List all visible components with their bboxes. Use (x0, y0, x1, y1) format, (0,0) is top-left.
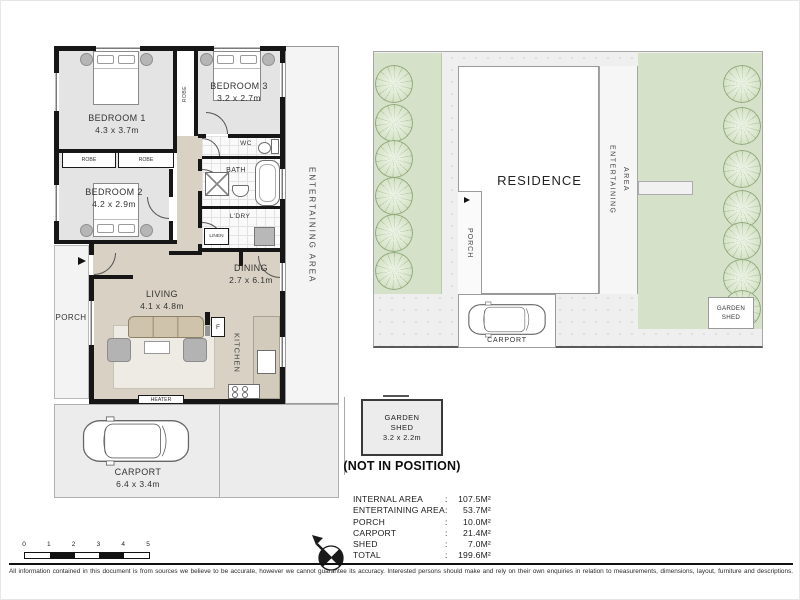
bathtub-inner (259, 164, 276, 202)
area-value: 7.0M² (453, 539, 491, 550)
scale-tick: 2 (72, 541, 76, 548)
area-label: TOTAL (353, 550, 445, 561)
window-icon (54, 185, 59, 221)
wall (169, 221, 173, 240)
area-label: CARPORT (353, 528, 445, 539)
window-icon (280, 263, 285, 291)
site-entertaining-label: ENTERTAININGAREA (605, 145, 632, 214)
window-icon (280, 63, 285, 97)
robe-label: ROBE (182, 85, 188, 101)
fridge-box: F (211, 317, 225, 337)
heater-label: HEATER (151, 397, 172, 403)
area-label: PORCH (353, 517, 445, 528)
disclaimer-text: All information contained in this docume… (9, 568, 793, 575)
area-sep: : (445, 494, 453, 505)
tree-icon (375, 214, 413, 252)
area-row: ENTERTAINING AREA:53.7M² (353, 505, 491, 516)
area-row: PORCH:10.0M² (353, 517, 491, 528)
wall (194, 46, 198, 136)
wall (94, 275, 133, 279)
entertaining-area-strip: ENTERTAINING AREA (285, 46, 339, 404)
window-icon (280, 337, 285, 367)
wc-label: WC (240, 140, 252, 148)
bathtub-icon (255, 160, 280, 206)
room-dims: 4.2 x 2.9m (85, 199, 143, 210)
blanket-line (94, 219, 138, 220)
scale-tick: 5 (146, 541, 150, 548)
area-value: 10.0M² (453, 517, 491, 528)
wall (54, 240, 177, 244)
side-table-icon (80, 53, 93, 66)
burner-icon (232, 392, 238, 398)
site-garden-shed-block: GARDEN SHED (708, 297, 754, 329)
pillow-icon (240, 55, 257, 64)
shower-icon (205, 172, 229, 196)
toilet-bowl-icon (258, 142, 271, 154)
area-sep: : (445, 505, 453, 516)
tree-icon (375, 140, 413, 178)
blanket-line (214, 68, 260, 69)
robe-closet: ROBE (177, 51, 194, 136)
linen-label: LINEN (209, 234, 223, 239)
pillow-icon (118, 55, 135, 64)
area-value: 53.7M² (453, 505, 491, 516)
tree-icon (723, 65, 761, 103)
porch-label: PORCH (56, 313, 87, 323)
tree-icon (723, 107, 761, 145)
wall (169, 169, 173, 197)
kitchen-sink-icon (257, 350, 276, 374)
shed-door-mark (383, 395, 409, 397)
area-value: 107.5M² (453, 494, 491, 505)
scale-segment (124, 553, 149, 558)
scale-tick: 0 (22, 541, 26, 548)
site-entertaining-line1: ENTERTAINING (609, 145, 616, 214)
site-shed-line1: GARDEN (717, 304, 745, 313)
window-icon (280, 169, 285, 199)
living-label: LIVING 4.1 x 4.8m (140, 289, 184, 312)
site-carport-label: CARPORT (487, 336, 527, 345)
tree-icon (723, 222, 761, 260)
robe-box: ROBE (118, 152, 174, 168)
area-sep: : (445, 517, 453, 528)
scale-bar-segments (24, 552, 150, 559)
scale-segment (99, 553, 124, 558)
area-row: INTERNAL AREA:107.5M² (353, 494, 491, 505)
disclaimer-rule (9, 563, 793, 565)
side-table-icon (80, 224, 93, 237)
area-value: 21.4M² (453, 528, 491, 539)
shed-detail-line2: SHED (391, 423, 414, 432)
site-entertaining-line2: AREA (622, 167, 629, 192)
area-sep: : (445, 528, 453, 539)
blanket-line (94, 68, 138, 69)
dining-label: DINING 2.7 x 6.1m (229, 263, 273, 286)
area-row: TOTAL:199.6M² (353, 550, 491, 561)
floorplan-page: ENTERTAINING AREA (0, 0, 800, 600)
room-name: DINING (229, 263, 273, 275)
scale-segment (50, 553, 75, 558)
room-dims: 6.4 x 3.4m (115, 479, 162, 490)
site-entertaining-strip: ENTERTAININGAREA (599, 66, 638, 294)
pillow-icon (97, 224, 114, 233)
pillow-icon (97, 55, 114, 64)
scale-bar: 0 1 2 3 4 5 (21, 541, 151, 562)
area-sep: : (445, 550, 453, 561)
area-table: INTERNAL AREA:107.5M² ENTERTAINING AREA:… (353, 494, 491, 562)
bedroom2-label: BEDROOM 2 4.2 x 2.9m (85, 187, 143, 210)
room-dims: 4.3 x 3.7m (88, 125, 146, 136)
shed-detail-dims: 3.2 x 2.2m (383, 433, 421, 442)
area-label: INTERNAL AREA (353, 494, 445, 505)
scale-tick: 1 (47, 541, 51, 548)
car-icon (467, 301, 547, 338)
window-icon (54, 73, 59, 111)
area-sep: : (445, 539, 453, 550)
laundry-label: L'DRY (230, 213, 250, 221)
bath-label: BATH (226, 166, 246, 175)
bed-icon (93, 51, 139, 105)
area-row: SHED:7.0M² (353, 539, 491, 550)
linen-cupboard: LINEN (204, 228, 229, 245)
site-porch-block: PORCH (458, 191, 482, 294)
site-walkway (638, 181, 693, 195)
scale-segment (75, 553, 100, 558)
fridge-label: F (216, 324, 220, 331)
residence-label: RESIDENCE (497, 173, 582, 188)
bedroom1-label: BEDROOM 1 4.3 x 3.7m (88, 113, 146, 136)
room-name: CARPORT (115, 467, 162, 479)
scale-tick: 3 (97, 541, 101, 548)
carport-label: CARPORT 6.4 x 3.4m (115, 467, 162, 490)
toilet-cistern-icon (271, 139, 279, 154)
kitchen-label: KITCHEN (233, 333, 242, 373)
site-shed-line2: SHED (722, 313, 740, 322)
entry-arrow-icon (78, 257, 86, 265)
wall (202, 156, 280, 159)
pillow-icon (217, 55, 234, 64)
carport-divider (219, 404, 220, 498)
not-in-position-note: (NOT IN POSITION) (343, 459, 460, 473)
robe-label: ROBE (139, 157, 154, 163)
shed-detail-line1: GARDEN (385, 413, 420, 422)
pillow-icon (118, 224, 135, 233)
room-dims: 3.2 x 2.7m (210, 93, 268, 104)
kitchen-label-wrap: KITCHEN (229, 323, 245, 383)
coffee-table-icon (144, 341, 170, 354)
area-label: ENTERTAINING AREA (353, 505, 445, 516)
room-dims: 2.7 x 6.1m (229, 275, 273, 286)
room-dims: 4.1 x 4.8m (140, 301, 184, 312)
robe-box: ROBE (62, 152, 116, 168)
washing-machine-icon (254, 227, 275, 246)
room-name: LIVING (140, 289, 184, 301)
heater-box: HEATER (138, 395, 184, 404)
side-table-icon (140, 224, 153, 237)
window-icon (89, 301, 94, 345)
bedroom3-label: BEDROOM 3 3.2 x 2.7m (210, 81, 268, 104)
shed-detail-box: GARDEN SHED 3.2 x 2.2m (361, 399, 443, 456)
room-name: BEDROOM 1 (88, 113, 146, 125)
wall (228, 134, 285, 138)
burner-icon (242, 392, 248, 398)
wall (169, 251, 202, 255)
wall (202, 206, 280, 209)
side-table-icon (200, 53, 213, 66)
tree-icon (375, 252, 413, 290)
entertaining-area-label: ENTERTAINING AREA (308, 167, 317, 283)
robe-label: ROBE (82, 157, 97, 163)
site-entry-arrow-icon (464, 197, 470, 203)
tree-icon (375, 65, 413, 103)
site-porch-label: PORCH (466, 228, 473, 258)
car-icon (81, 415, 191, 467)
area-label: SHED (353, 539, 445, 550)
tree-icon (375, 177, 413, 215)
tree-icon (375, 104, 413, 142)
side-table-icon (262, 53, 275, 66)
side-table-icon (140, 53, 153, 66)
area-row: CARPORT:21.4M² (353, 528, 491, 539)
scale-segment (25, 553, 50, 558)
armchair-icon (107, 338, 131, 362)
armchair-icon (183, 338, 207, 362)
room-name: BEDROOM 3 (210, 81, 268, 93)
scale-tick: 4 (121, 541, 125, 548)
tree-icon (723, 150, 761, 188)
room-name: BEDROOM 2 (85, 187, 143, 199)
sofa-icon (128, 316, 204, 338)
area-value: 199.6M² (453, 550, 491, 561)
